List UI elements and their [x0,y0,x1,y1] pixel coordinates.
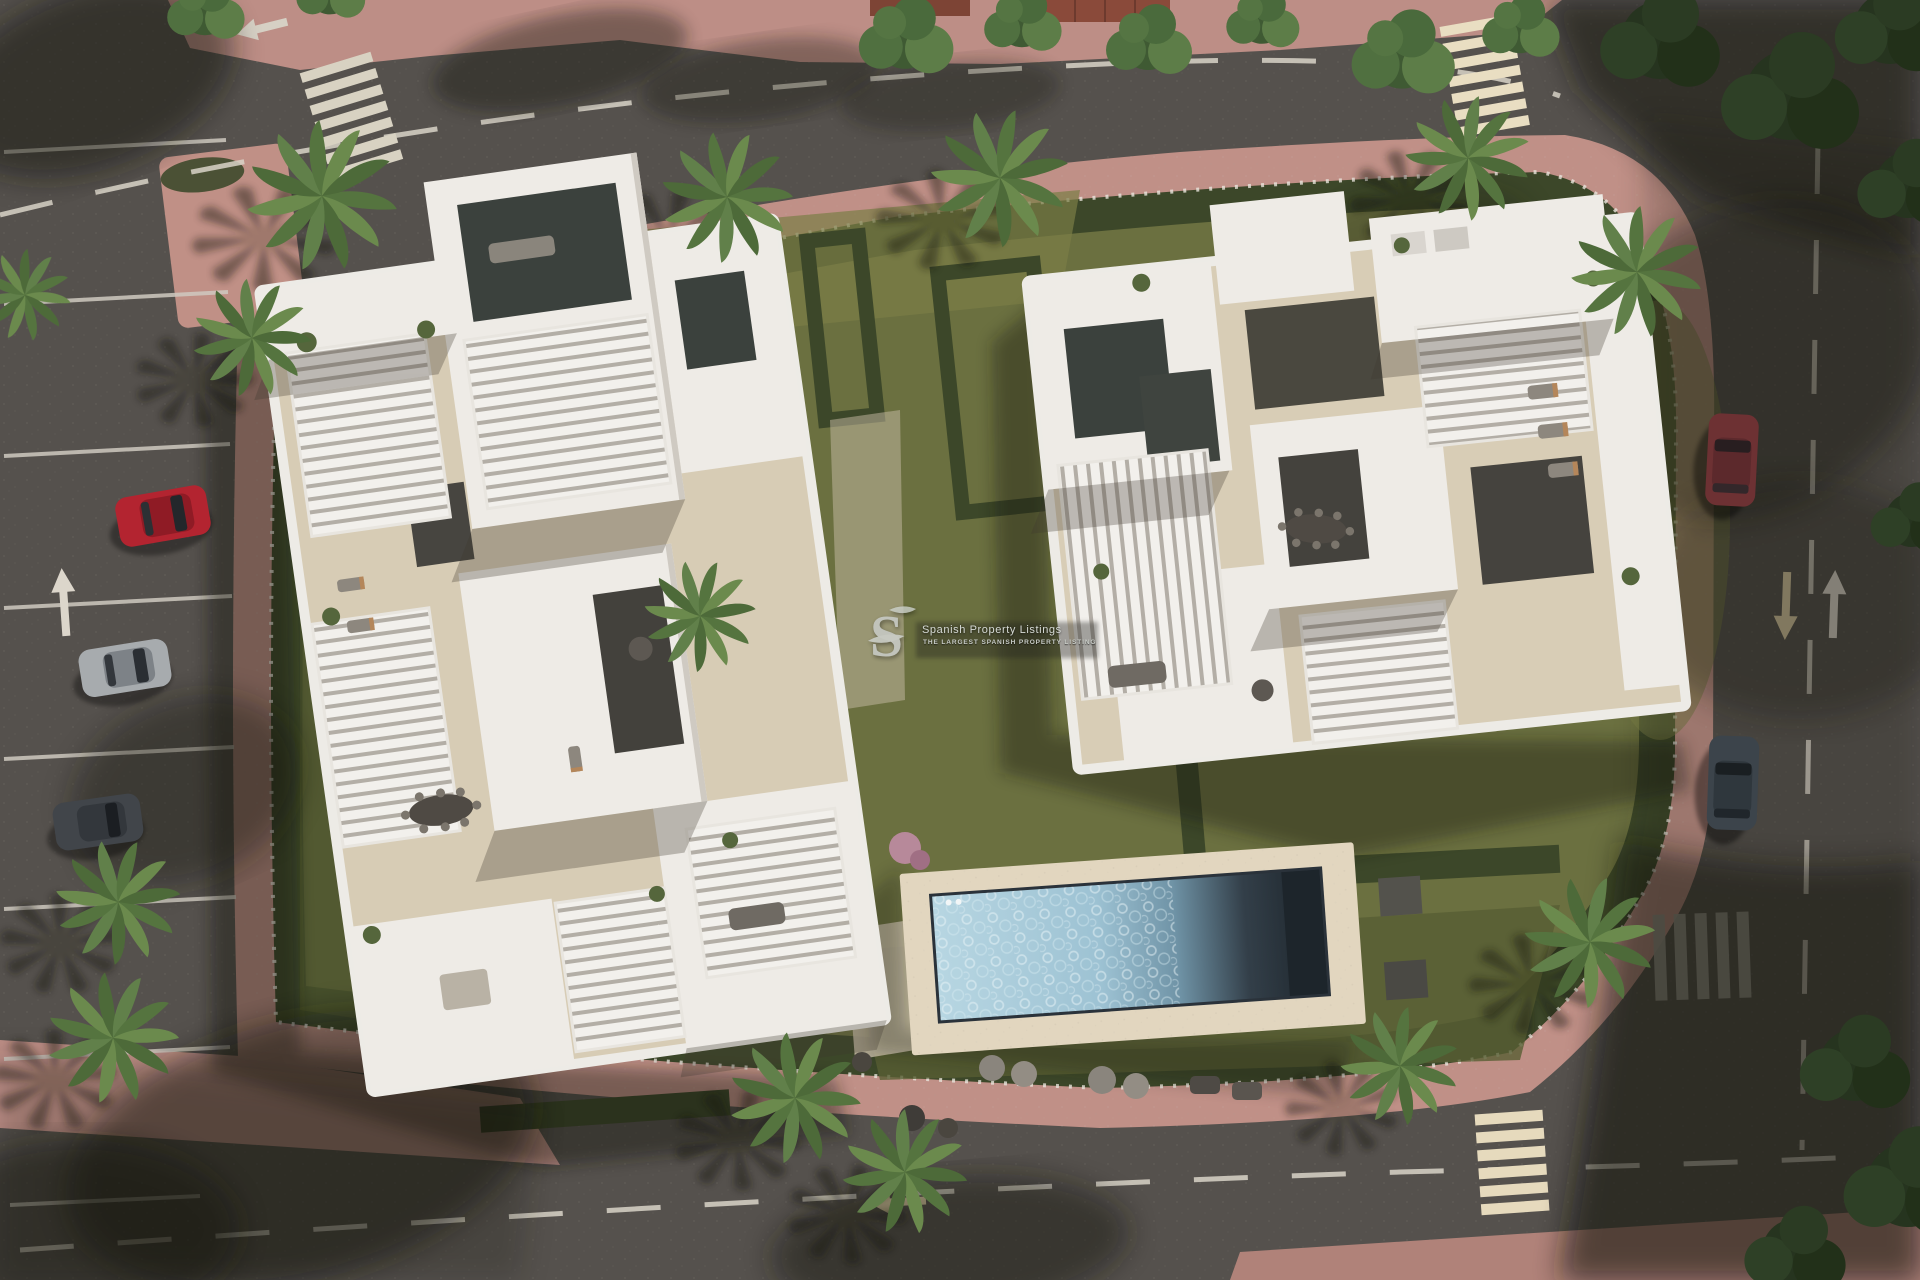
watermark-subtitle: THE LARGEST SPANISH PROPERTY LISTING [923,639,1103,646]
watermark-logo-icon: S [866,606,918,666]
watermark: S Spanish Property Listings THE LARGEST … [866,606,1106,670]
pool-area [899,838,1429,1056]
watermark-title: Spanish Property Listings [922,624,1102,636]
aerial-render-stage: S Spanish Property Listings THE LARGEST … [0,0,1920,1280]
